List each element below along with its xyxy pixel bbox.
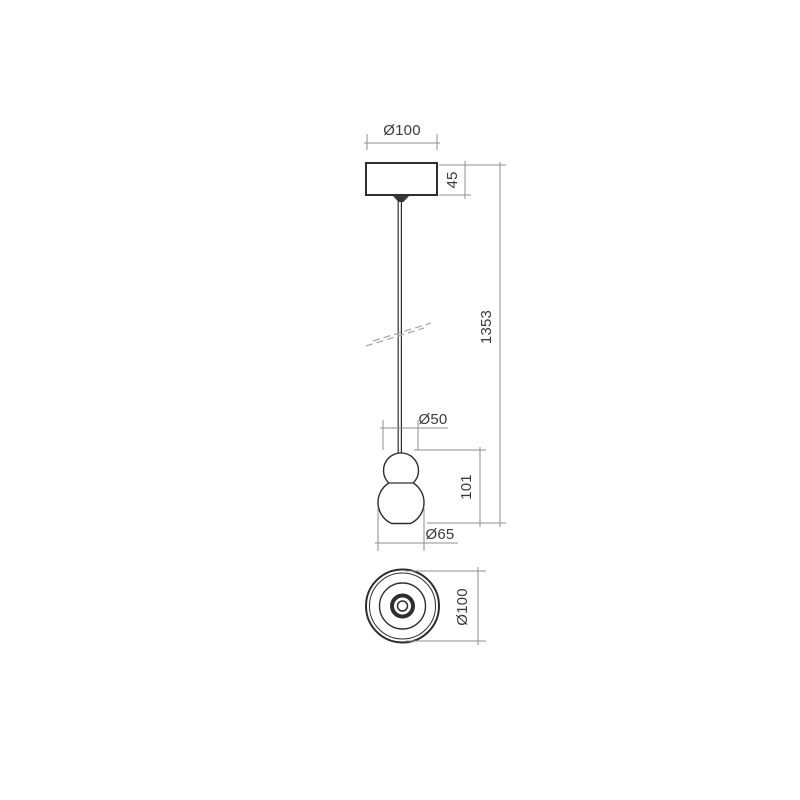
pendant-lamp-technical-drawing: Ø100 45 1353 — [0, 0, 800, 800]
dim-body-height: 101 — [414, 447, 486, 527]
center-hole-circle — [398, 601, 408, 611]
canopy-outline — [366, 163, 437, 195]
dim-label-canopy-diameter: Ø100 — [383, 122, 421, 139]
upper-sphere-outline — [384, 453, 419, 483]
drawing-canvas: Ø100 45 1353 — [0, 0, 800, 800]
front-view: Ø100 45 1353 — [364, 122, 506, 551]
dim-upper-sphere-diameter: Ø50 — [380, 411, 448, 450]
led-ring — [392, 596, 413, 617]
dim-label-body-height: 101 — [458, 474, 475, 500]
dim-label-suspension-length: 1353 — [478, 310, 495, 344]
dim-label-upper-sphere-diameter: Ø50 — [419, 411, 448, 428]
outer-rim-circle — [366, 570, 439, 643]
dim-label-bottom-diameter: Ø100 — [454, 588, 471, 626]
dim-canopy-diameter: Ø100 — [364, 122, 440, 150]
dim-suspension-length: 1353 — [427, 162, 506, 527]
dim-lower-sphere-diameter: Ø65 — [375, 508, 458, 551]
dim-label-canopy-height: 45 — [444, 171, 461, 188]
diffuser-circle — [380, 583, 426, 629]
lower-sphere-outline — [378, 483, 424, 524]
dim-canopy-height: 45 — [439, 161, 506, 199]
suspension-cable — [398, 197, 401, 453]
bottom-view: Ø100 — [366, 567, 486, 645]
dim-bottom-diameter: Ø100 — [406, 567, 486, 645]
dim-label-lower-sphere-diameter: Ø65 — [426, 526, 455, 543]
lamp-body-outline — [378, 453, 424, 524]
